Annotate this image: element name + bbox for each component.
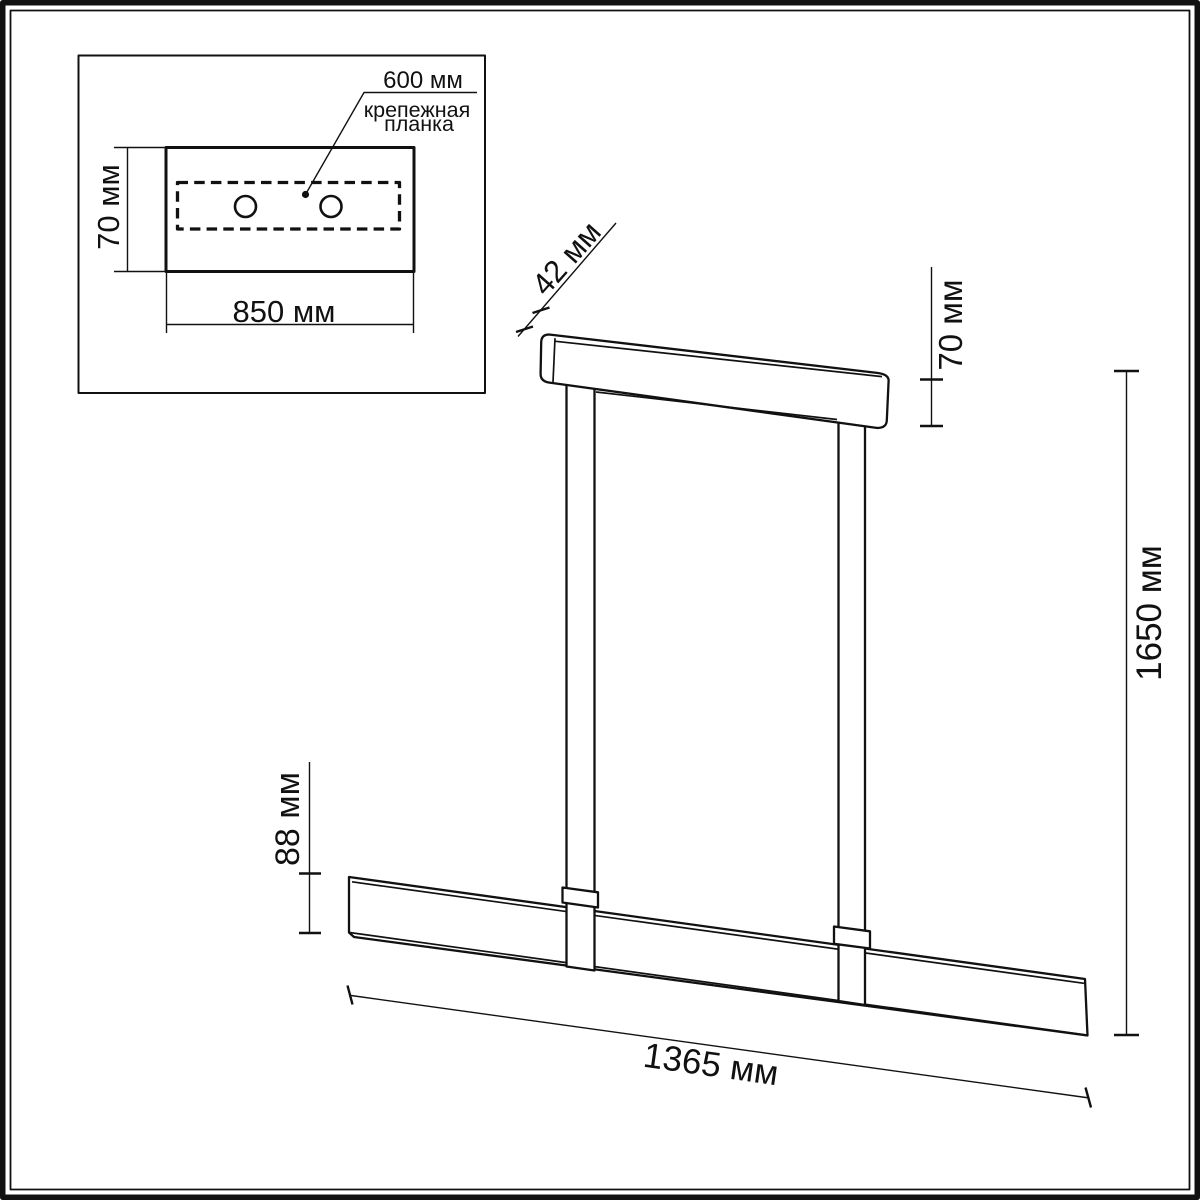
mounting-plate-inset: 600 мм крепежная планка 70 мм 850 мм [79, 56, 486, 394]
plate-height-label: 70 мм [91, 164, 126, 250]
screw-hole-left [235, 196, 256, 217]
screw-hole-right [321, 196, 342, 217]
hole-spacing-label: 600 мм [383, 67, 463, 94]
drawing-canvas: 600 мм крепежная планка 70 мм 850 мм [0, 0, 1200, 1200]
rod-right-connector-sleeve [834, 927, 870, 949]
bracket-label-line2: планка [384, 112, 454, 136]
canopy-depth-label: 42 мм [525, 215, 608, 302]
canopy-height-label: 70 мм [932, 279, 969, 370]
bar-height-dimension: 88 мм [269, 762, 321, 933]
canopy-height-dimension: 70 мм [920, 267, 969, 427]
bar-height-label: 88 мм [269, 772, 307, 866]
mounting-bracket-dashed-rect [178, 183, 400, 230]
suspension-rod-right [839, 423, 866, 931]
overall-height-dimension: 1650 мм [1114, 371, 1169, 1035]
plate-width-label: 850 мм [233, 294, 336, 329]
overall-height-label: 1650 мм [1130, 545, 1169, 681]
light-bar-body [349, 877, 1088, 1036]
technical-drawing-page: 600 мм крепежная планка 70 мм 850 мм [0, 0, 1200, 1200]
canopy-depth-dimension: 42 мм [516, 215, 616, 337]
suspension-rod-left [567, 385, 595, 893]
bar-length-label: 1365 мм [641, 1036, 781, 1094]
rod-left-lower-end [567, 898, 595, 971]
pendant-fixture [349, 335, 1088, 1036]
plate-width-dimension: 850 мм [167, 273, 414, 334]
plate-height-dimension: 70 мм [91, 148, 165, 272]
canopy-body [541, 335, 889, 428]
ceiling-plate-rect [166, 148, 414, 272]
light-bar [349, 877, 1088, 1036]
canopy [541, 335, 889, 428]
